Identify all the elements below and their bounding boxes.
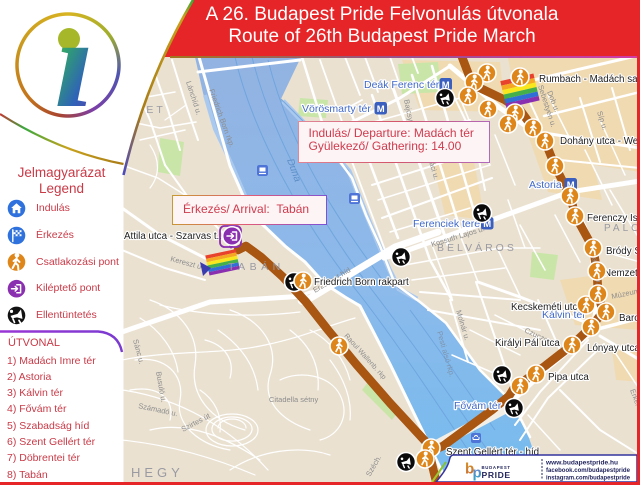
svg-text:Dohány utca - Wess: Dohány utca - Wess [560,136,640,147]
svg-text:Ferenciek tere: Ferenciek tere [413,218,480,230]
svg-text:Nemzeti: Nemzeti [604,268,640,279]
svg-text:instagram.com/budapestpride: instagram.com/budapestpride [546,475,630,482]
svg-text:Királyi Pál utca: Királyi Pál utca [495,338,560,349]
svg-text:PRIDE: PRIDE [482,470,511,480]
svg-text:Astoria: Astoria [529,179,562,191]
svg-text:Fővám tér: Fővám tér [454,400,502,412]
svg-text:facebook.com/budapestpride: facebook.com/budapestpride [546,467,630,474]
svg-text:p: p [473,465,482,482]
svg-text:M: M [377,104,385,115]
svg-text:Pipa utca: Pipa utca [548,372,589,383]
svg-text:Attila utca - Szarvas t...: Attila utca - Szarvas t... [124,231,225,242]
svg-text:Ferenczy Istv: Ferenczy Istv [587,213,640,224]
svg-text:Kecskeméti utca: Kecskeméti utca [511,302,583,313]
svg-text:www.budapestpride.hu: www.budapestpride.hu [545,460,618,467]
svg-text:Bródy Sá: Bródy Sá [606,246,640,257]
svg-text:Vörösmarty tér: Vörösmarty tér [302,103,371,115]
svg-text:Friedrich Born rakpart: Friedrich Born rakpart [314,277,409,288]
svg-text:Lónyay utca: Lónyay utca [587,343,640,354]
svg-text:Deák Ferenc tér: Deák Ferenc tér [364,79,440,91]
svg-text:Rumbach - Madách saro: Rumbach - Madách saro [539,74,640,85]
